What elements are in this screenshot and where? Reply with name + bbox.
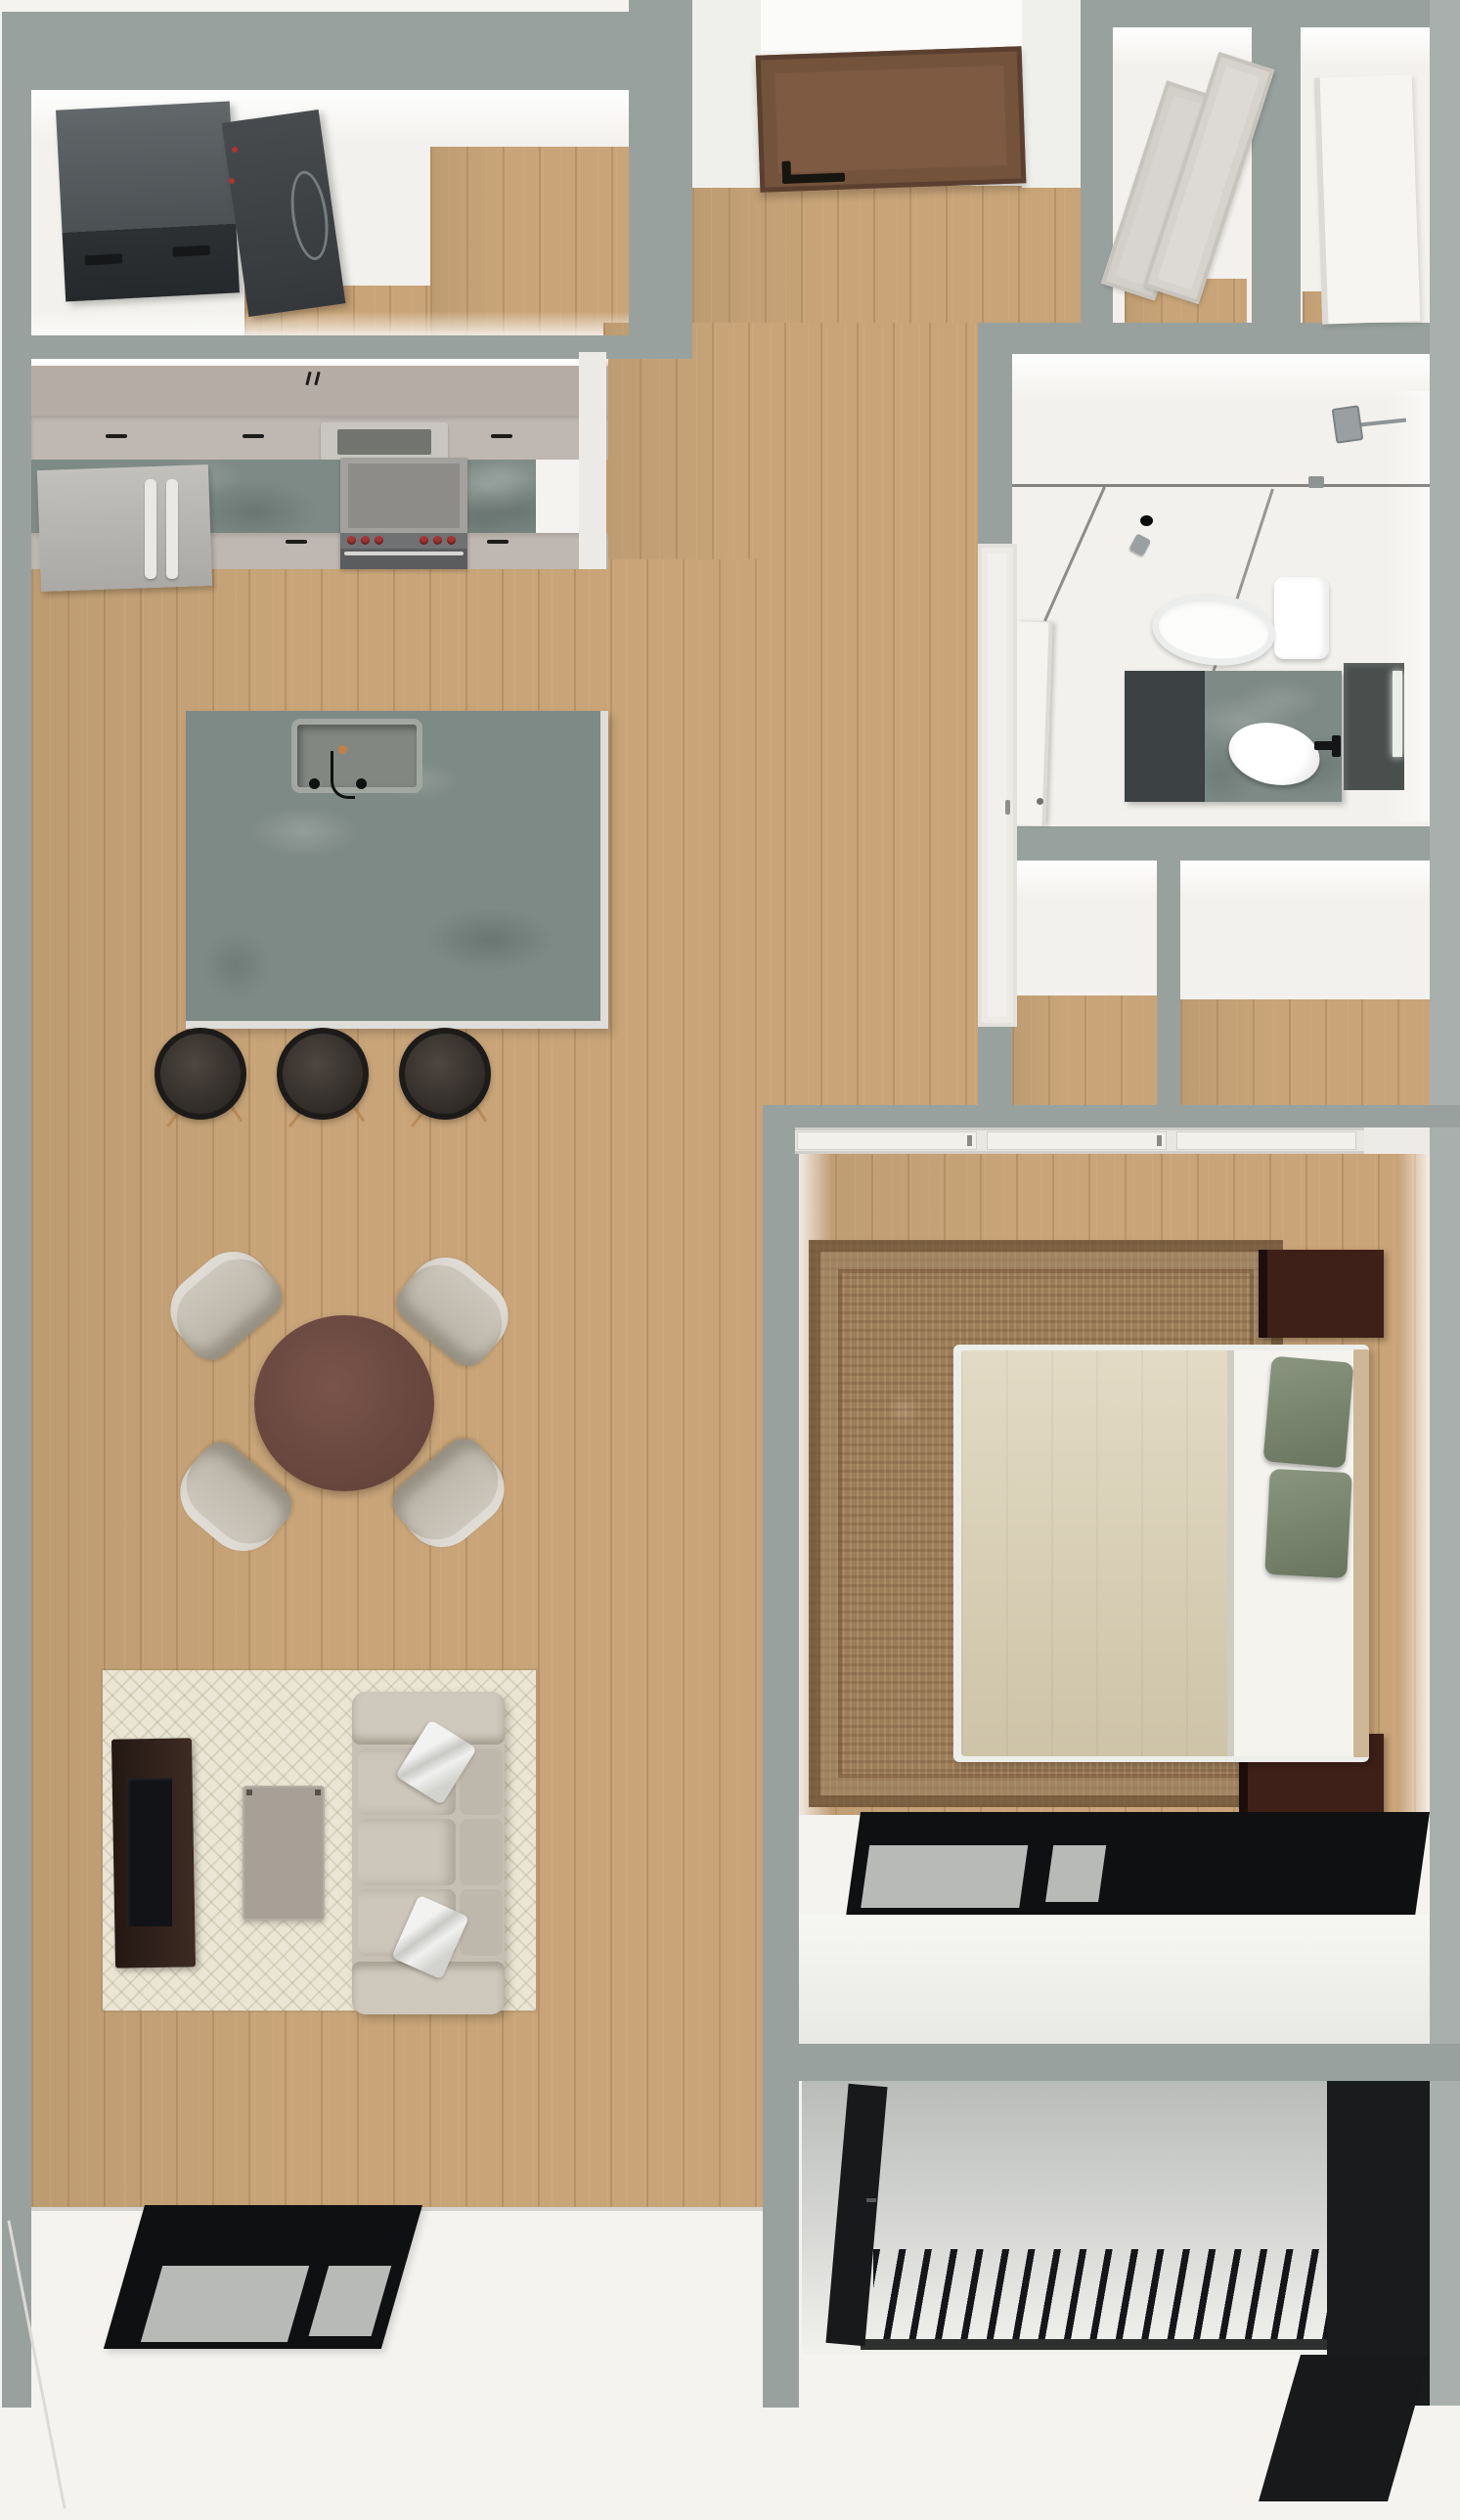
stove-knob-2 — [361, 536, 370, 545]
bedroom-wall-fill — [1364, 1127, 1430, 1154]
wall-bedroom-left — [763, 1105, 799, 2408]
entry-floor — [692, 186, 1081, 325]
living-window-pane-2 — [309, 2266, 392, 2336]
bed-sheet-fold — [1227, 1350, 1234, 1756]
bedroom-right-wall-glow — [1398, 1154, 1430, 1815]
balcony-railing — [873, 2249, 1327, 2343]
shower-glass-partition — [1012, 484, 1430, 487]
laundry-indicator-light-2 — [229, 178, 235, 184]
bed-pillow-2 — [1264, 1469, 1352, 1578]
cabinet-handle-2 — [243, 434, 264, 438]
island-faucet-dot-2 — [356, 778, 367, 789]
linen-closet-handle — [1005, 800, 1010, 815]
entry-door-handle-post — [781, 161, 791, 184]
washer-handle-2 — [172, 245, 209, 257]
washer — [56, 101, 240, 301]
bedroom-sliding-door-track — [795, 1127, 1364, 1154]
stove-knob-5 — [433, 536, 442, 545]
toilet-tank — [1274, 577, 1329, 659]
island-faucet-dot-1 — [309, 778, 320, 789]
balcony-railing-base — [861, 2339, 1330, 2350]
bedroom-window-pane-2 — [1045, 1845, 1106, 1902]
wall-bathroom-left-upper — [978, 354, 1012, 550]
alcove-glow — [1012, 861, 1430, 900]
stove-knob-1 — [347, 536, 356, 545]
bedroom-window — [846, 1812, 1430, 1915]
floor-plan — [0, 0, 1460, 2520]
wall-closets-top — [1081, 0, 1430, 27]
microwave-glass — [337, 429, 431, 455]
bathroom-glow — [1012, 354, 1430, 401]
entry-door-frame-top — [729, 0, 1051, 51]
vanity-faucet-base — [1332, 735, 1341, 757]
bedroom-sliding-door-panel-1 — [797, 1131, 977, 1150]
shower-head — [1332, 405, 1364, 444]
wall-left — [2, 12, 31, 2408]
coffee-table-leg-1 — [246, 1790, 252, 1795]
entry-side-wall-left — [692, 0, 761, 188]
closet-b-wardrobe — [1314, 74, 1421, 324]
bed-pillow-1 — [1262, 1356, 1353, 1469]
balcony-door-handle — [866, 2198, 876, 2202]
nightstand-1 — [1259, 1250, 1384, 1338]
stove-glass-top — [348, 464, 460, 528]
coffee-table — [243, 1786, 325, 1921]
bar-stool-1 — [155, 1028, 246, 1120]
drawer-handle-2 — [487, 540, 509, 544]
entry-side-wall-right — [1022, 0, 1083, 188]
bedroom-sliding-door-panel-2 — [987, 1131, 1167, 1150]
bar-stool-2 — [277, 1028, 369, 1120]
bedroom-sliding-door-panel-3 — [1176, 1131, 1356, 1150]
wall-balcony-top — [799, 2044, 1460, 2081]
wall-bathroom-top — [978, 323, 1430, 354]
shower-glass-hinge — [1308, 476, 1324, 488]
fridge-handle-2 — [166, 479, 178, 579]
wall-alcove-divider — [1157, 861, 1180, 1105]
shower-drain — [1140, 515, 1153, 526]
entry-door-handle — [782, 173, 845, 184]
cabinet-handle-1 — [106, 434, 127, 438]
counter-right — [467, 460, 536, 533]
drawer-handle-1 — [286, 540, 307, 544]
mirror-sconce-light — [1393, 671, 1402, 757]
alcove-1-wood — [1012, 995, 1157, 1105]
balcony-shadow-triangle — [1259, 2355, 1430, 2501]
dryer-door-gasket — [286, 168, 332, 262]
island-soap-dispenser — [338, 745, 347, 754]
washer-handle — [85, 253, 122, 265]
alcove-2-wood — [1180, 999, 1430, 1105]
vanity-cabinet — [1125, 671, 1205, 802]
laundry-indicator-light — [232, 147, 238, 153]
bedroom-window-sill — [799, 1915, 1430, 2044]
bed-headboard — [1353, 1349, 1369, 1757]
oven-handle — [344, 552, 464, 555]
living-window — [104, 2205, 422, 2349]
stove-knob-3 — [375, 536, 383, 545]
sliding-door-handle — [967, 1135, 972, 1146]
bathroom-door-knob — [1037, 798, 1043, 805]
kitchen-end-panel — [579, 352, 606, 569]
fridge-handle-1 — [145, 479, 156, 579]
sliding-door-handle-2 — [1157, 1135, 1162, 1146]
refrigerator — [37, 464, 212, 592]
entry-door — [756, 46, 1027, 192]
wall-bathroom-bottom — [978, 826, 1430, 861]
wall-bedroom-top — [763, 1105, 1460, 1127]
tv-screen — [127, 1778, 172, 1926]
stove-knob-6 — [447, 536, 456, 545]
island-faucet-spout — [331, 751, 355, 799]
living-window-pane-1 — [141, 2266, 309, 2342]
bedroom-window-pane-1 — [861, 1845, 1028, 1908]
dining-table — [254, 1315, 434, 1491]
cabinet-handle-3 — [491, 434, 512, 438]
sofa-seat-2 — [358, 1819, 456, 1885]
stove-knob-4 — [420, 536, 428, 545]
wall-bathroom-left-lower — [978, 1025, 1012, 1107]
wall-laundry-top — [2, 12, 692, 90]
linen-closet-front — [978, 544, 1017, 1027]
laundry-bottom-glow — [31, 311, 629, 335]
bar-stool-3 — [399, 1028, 491, 1120]
bed-duvet — [961, 1350, 1227, 1756]
coffee-table-leg-2 — [315, 1790, 321, 1795]
closet-b-glow — [1301, 27, 1430, 66]
laundry-wood-floor — [430, 147, 629, 335]
sofa-back-cushion-2 — [460, 1819, 503, 1885]
wall-laundry-right — [629, 12, 692, 359]
